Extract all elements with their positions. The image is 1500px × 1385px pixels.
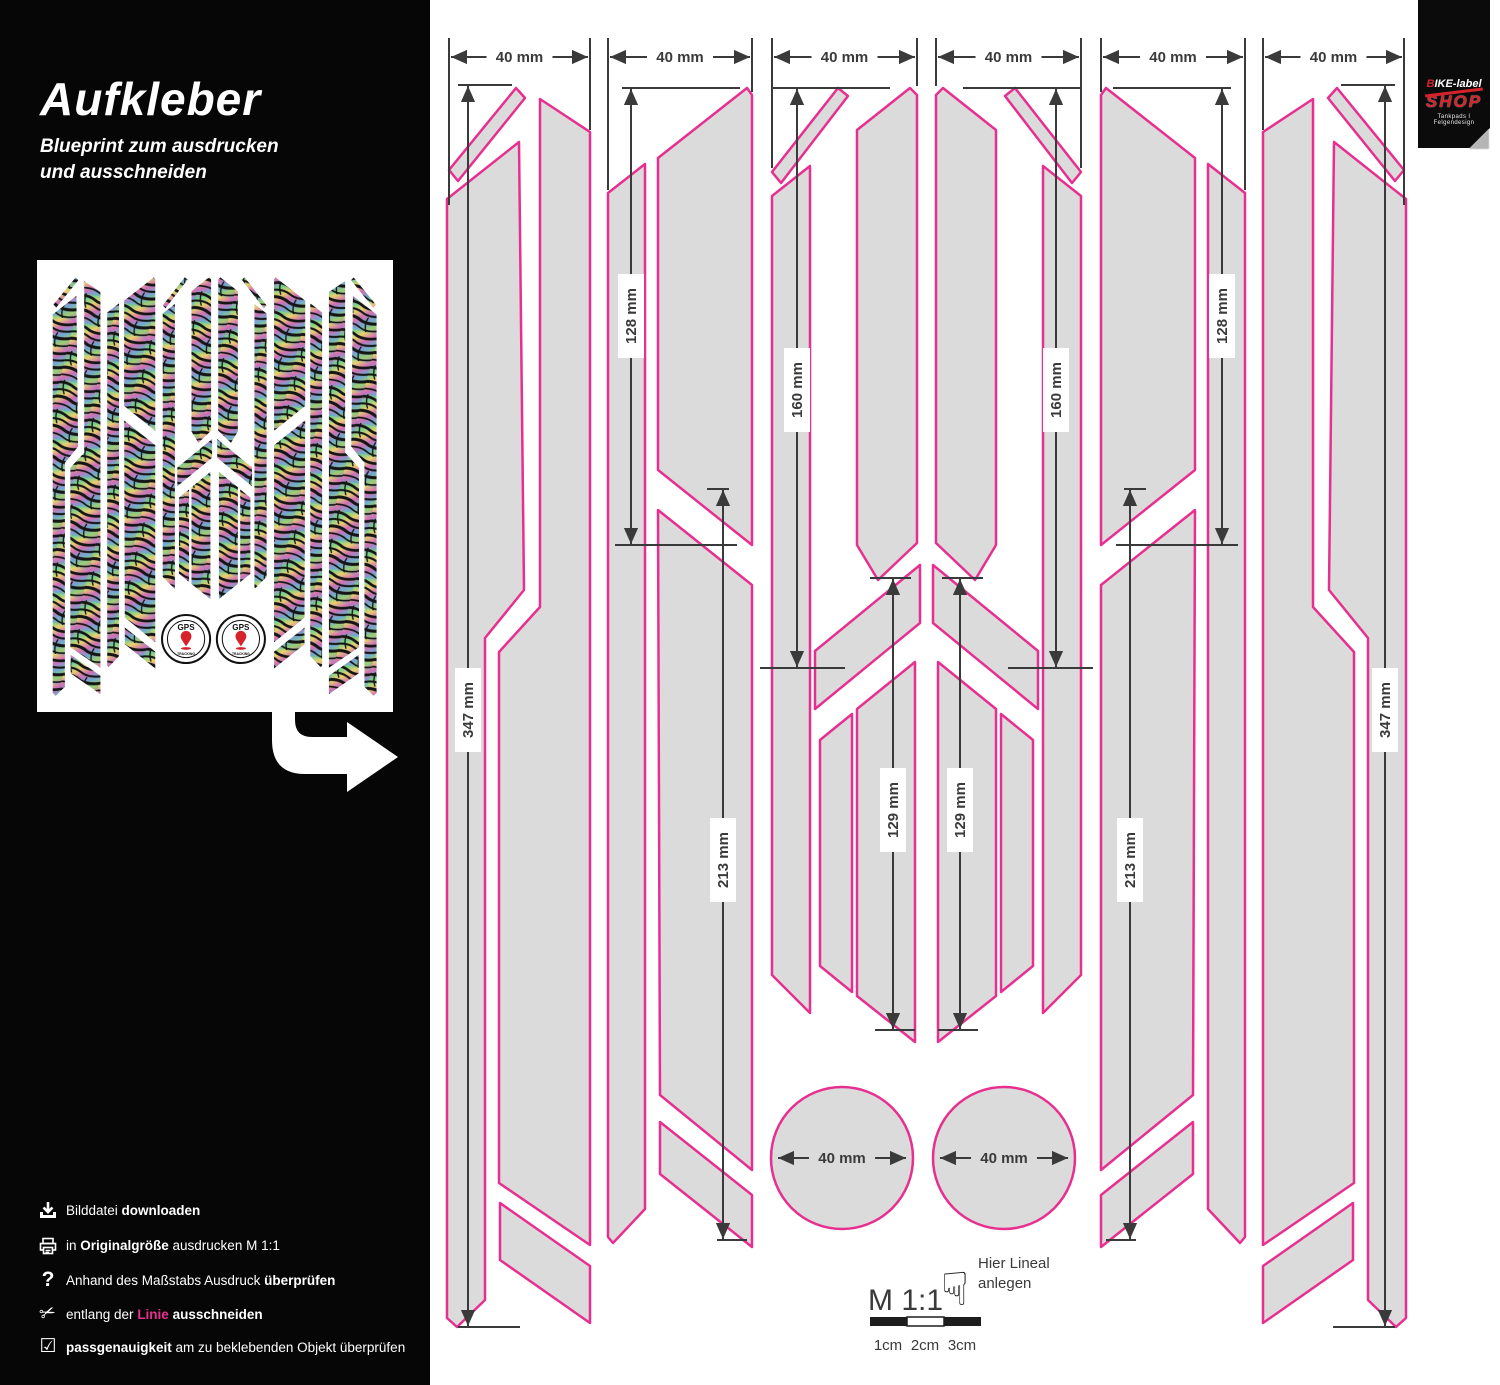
preview-sticker-shape <box>162 303 175 590</box>
dimension-lines: 40 mm40 mm40 mm40 mm40 mm40 mm347 mm347 … <box>449 38 1404 1327</box>
ruler-segment <box>944 1317 981 1326</box>
preview-image: GPSTRACKINGGPSTRACKING <box>50 270 380 702</box>
printer-icon <box>30 1235 66 1257</box>
preview-sticker-shape <box>179 489 190 583</box>
preview-sticker-shapes <box>52 277 377 696</box>
dimension-label: 40 mm <box>818 1150 866 1167</box>
preview-card: GPSTRACKINGGPSTRACKING <box>37 260 393 712</box>
dimension-label: 40 mm <box>1310 49 1358 66</box>
gps-badge: GPSTRACKING <box>162 615 210 663</box>
instruction-text: Anhand des Maßstabs Ausdruck überprüfen <box>66 1270 335 1289</box>
dimension-label: 129 mm <box>952 782 969 838</box>
question-icon: ? <box>30 1270 66 1291</box>
preview-sticker-shape <box>310 303 323 668</box>
gps-badge-label: GPS <box>177 623 195 632</box>
preview-sticker-shape <box>218 277 238 444</box>
sticker-shape <box>1101 88 1195 545</box>
dimension-label: 213 mm <box>715 832 732 888</box>
scissors-icon: ✂ <box>30 1304 66 1324</box>
instruction-text: Bilddatei downloaden <box>66 1200 200 1219</box>
dimension-label: 40 mm <box>656 49 704 66</box>
pointing-hand-icon: ☟ <box>941 1262 969 1316</box>
logo: BIKE-label SHOP Tankpads I Felgendesign <box>1418 0 1490 148</box>
preview-sticker-shape <box>254 303 267 590</box>
preview-sticker-shape <box>219 471 239 600</box>
logo-tagline: Tankpads I Felgendesign <box>1418 114 1490 126</box>
preview-sticker-shape <box>191 471 211 600</box>
dimension-label: 160 mm <box>789 362 806 418</box>
gps-badge: GPSTRACKING <box>217 615 265 663</box>
preview-sticker-shape <box>124 420 156 643</box>
dimension-label: 347 mm <box>460 682 477 738</box>
sticker-shape <box>1043 166 1081 1013</box>
dimension-label: 129 mm <box>885 782 902 838</box>
preview-sticker-shape <box>107 303 120 668</box>
instruction-row: ?Anhand des Maßstabs Ausdruck überprüfen <box>30 1270 422 1291</box>
scale-block: M 1:1☟Hier Linealanlegen1cm2cm3cm <box>868 1255 1050 1354</box>
ruler-segment <box>907 1317 944 1326</box>
instruction-row: ☑passgenauigkeit am zu beklebenden Objek… <box>30 1337 422 1357</box>
page-curl-icon <box>1470 128 1490 148</box>
ruler-label: 2cm <box>911 1337 939 1354</box>
instruction-text: passgenauigkeit am zu beklebenden Objekt… <box>66 1337 405 1356</box>
gps-badge-label: GPS <box>232 623 250 632</box>
dimension-label: 128 mm <box>623 288 640 344</box>
ruler-hint-line2: anlegen <box>978 1275 1031 1292</box>
sticker-shape <box>820 714 852 992</box>
sticker-shape <box>658 88 752 545</box>
page-title: Aufkleber <box>40 72 261 126</box>
sidebar: Aufkleber Blueprint zum ausdrucken und a… <box>0 0 430 1385</box>
sticker-shape <box>658 510 752 1170</box>
sticker-shape <box>1101 510 1195 1170</box>
dimension-label: 40 mm <box>821 49 869 66</box>
sticker-cut-shapes <box>447 88 1406 1327</box>
dimension-label: 40 mm <box>985 49 1033 66</box>
instruction-list: Bilddatei downloadenin Originalgröße aus… <box>30 1200 422 1370</box>
sticker-shape <box>857 88 917 580</box>
dimension-label: 213 mm <box>1122 832 1139 888</box>
page-subtitle: Blueprint zum ausdrucken und ausschneide… <box>40 134 279 186</box>
sticker-shape <box>936 88 996 580</box>
download-icon <box>30 1200 66 1222</box>
dimension-label: 40 mm <box>980 1150 1028 1167</box>
dimension-label: 347 mm <box>1377 682 1394 738</box>
dimension-label: 160 mm <box>1048 362 1065 418</box>
page: 40 mm40 mm40 mm40 mm40 mm40 mm347 mm347 … <box>0 0 1500 1385</box>
preview-sticker-shape <box>274 277 306 432</box>
preview-sticker-shape <box>124 277 156 432</box>
instruction-row: Bilddatei downloaden <box>30 1200 422 1222</box>
preview-sticker-shape <box>240 489 251 583</box>
instruction-text: in Originalgröße ausdrucken M 1:1 <box>66 1235 280 1254</box>
dimension-label: 40 mm <box>496 49 544 66</box>
instruction-row: in Originalgröße ausdrucken M 1:1 <box>30 1235 422 1257</box>
scale-label: M 1:1 <box>868 1284 943 1317</box>
dimension-label: 40 mm <box>1149 49 1197 66</box>
gps-badge-sublabel: TRACKING <box>177 652 195 656</box>
subtitle-line2: und ausschneiden <box>40 162 207 183</box>
gps-badge-sublabel: TRACKING <box>232 652 250 656</box>
ruler-hint-line1: Hier Lineal <box>978 1255 1050 1272</box>
preview-sticker-shape <box>191 277 211 444</box>
sticker-shape <box>772 166 810 1013</box>
ruler-label: 3cm <box>948 1337 976 1354</box>
preview-sticker-shape <box>274 420 306 643</box>
subtitle-line1: Blueprint zum ausdrucken <box>40 136 279 157</box>
instruction-text: entlang der Linie ausschneiden <box>66 1304 263 1323</box>
ruler-segment <box>870 1317 907 1326</box>
ruler-label: 1cm <box>874 1337 902 1354</box>
arrow-right-icon <box>272 712 398 792</box>
preview-gps-badges: GPSTRACKINGGPSTRACKING <box>162 615 265 663</box>
checkbox-icon: ☑ <box>30 1337 66 1357</box>
instruction-row: ✂entlang der Linie ausschneiden <box>30 1304 422 1324</box>
sticker-shape <box>1001 714 1033 992</box>
dimension-label: 128 mm <box>1214 288 1231 344</box>
